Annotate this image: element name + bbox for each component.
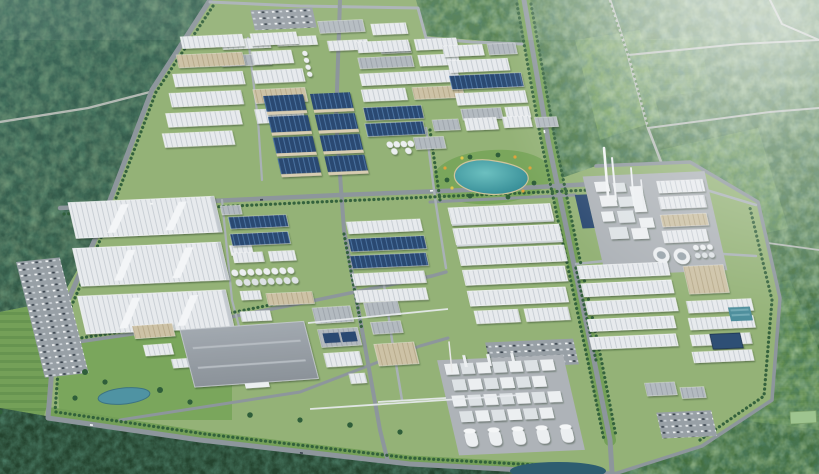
east-parking [656, 410, 717, 438]
aerial-scene [0, 0, 819, 474]
mega-warehouse [68, 196, 222, 238]
greenhouse [790, 411, 817, 424]
rooftop-solar-panels [322, 332, 340, 343]
mega-warehouse [73, 242, 230, 286]
industrial-park-aerial-render [0, 0, 819, 474]
